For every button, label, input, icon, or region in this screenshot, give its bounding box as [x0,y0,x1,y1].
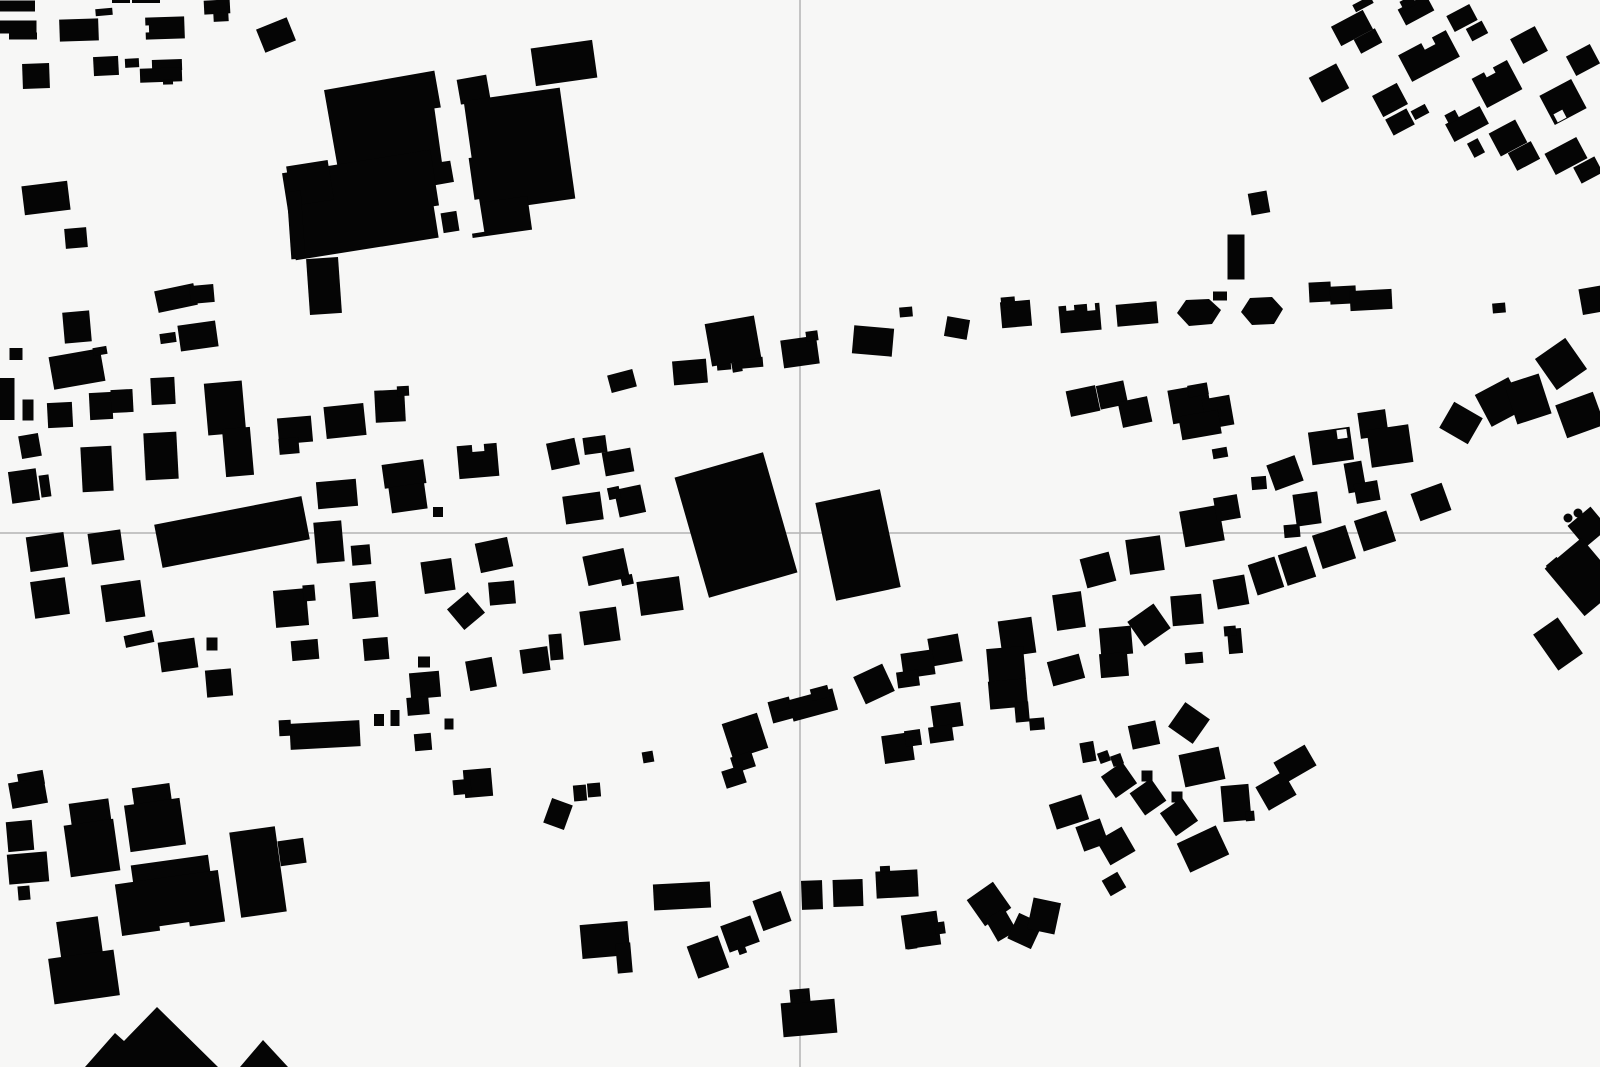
building-footprint [1125,535,1165,575]
building-footprint [899,306,913,317]
building-footprint [1213,292,1227,301]
building-footprint [562,491,604,524]
building-footprint [642,751,655,764]
building-footprint [519,646,550,674]
building-footprint [1564,514,1573,523]
buildings-top-layer [441,211,460,233]
building-footprint [140,67,182,82]
building-footprint [587,782,601,797]
building-footprint [1099,626,1133,657]
building-footprint [132,0,160,3]
building-footprint [205,668,233,697]
building-footprint [1052,591,1086,631]
building-footprint [488,580,516,605]
building-footprint [636,576,683,616]
building-footprint [1248,191,1271,216]
building-footprint [88,529,125,564]
building-footprint [573,784,587,801]
building-footprint [1014,701,1030,722]
building-footprint [204,380,246,435]
building-footprint [143,432,178,481]
building-footprint [414,733,432,751]
building-footprint [672,359,708,386]
building-footprint [852,325,894,356]
building-footprint [1292,491,1321,526]
building-footprint [374,714,384,726]
building-footprint [901,911,941,950]
building-footprint [163,79,173,84]
building-footprint [615,942,633,973]
building-footprint [277,838,306,866]
building-footprint [64,819,121,877]
building-footprint [461,88,576,213]
building-footprint [8,468,40,504]
building-footprint [278,437,299,455]
building-footprint [1029,717,1045,730]
building-footprint [409,671,441,700]
building-footprint [602,448,635,477]
map-viewport[interactable] [0,0,1600,1067]
building-footprint [1492,302,1506,313]
building-footprint [880,866,890,873]
building-footprint [607,486,621,500]
building-cutout [1066,301,1075,311]
building-footprint [1367,424,1414,467]
building-footprint [934,921,946,934]
building-footprint [1574,509,1583,518]
building-footprint [64,227,88,249]
building-cutout [143,25,149,32]
building-footprint [17,886,30,901]
building-footprint [189,284,214,304]
building-footprint [306,257,342,315]
building-cutout [1336,429,1347,439]
building-footprint [1308,281,1331,302]
building-footprint [1308,427,1354,466]
building-footprint [1251,476,1267,490]
building-footprint [47,402,73,428]
building-footprint [18,433,42,459]
building-footprint [158,638,199,673]
building-footprint [441,211,460,233]
building-footprint [1213,574,1250,609]
building-footprint [23,400,34,421]
building-footprint [1245,811,1255,822]
building-footprint [289,720,360,750]
building-footprint [653,882,711,911]
building-footprint [928,724,954,743]
building-footprint [705,315,762,366]
building-footprint [291,639,320,661]
building-footprint [222,427,254,477]
building-footprint [397,386,410,397]
building-footprint [150,377,175,405]
building-footprint [177,320,218,351]
building-footprint [323,403,366,439]
building-footprint [302,585,315,602]
building-footprint [207,638,218,651]
building-footprint [89,392,113,420]
building-footprint [896,670,920,689]
building-footprint [582,435,607,455]
building-footprint [22,63,50,89]
building-footprint [101,580,146,622]
building-footprint [1224,625,1237,636]
building-footprint [0,378,15,420]
building-footprint [0,1,35,12]
building-footprint [731,361,743,373]
building-footprint [1283,524,1300,538]
building-footprint [465,657,497,691]
building-footprint [452,779,471,796]
building-footprint [279,720,292,737]
building-footprint [833,879,864,907]
building-footprint [93,56,119,76]
building-footprint [363,637,390,661]
building-footprint [125,58,139,68]
building-cutout [1087,301,1096,311]
building-footprint [904,729,922,747]
building-footprint [59,18,99,41]
building-footprint [986,646,1026,682]
building-footprint [9,33,37,40]
building-footprint [213,12,228,22]
building-footprint [6,820,35,852]
building-footprint [805,330,818,342]
building-footprint [7,851,49,884]
building-footprint [944,316,970,340]
building-footprint [388,483,427,514]
building-footprint [145,16,185,39]
building-footprint [548,633,563,660]
building-footprint [1099,652,1129,678]
building-footprint [124,798,186,852]
building-footprint [1228,235,1245,280]
building-footprint [1350,289,1393,311]
building-footprint [62,310,92,343]
building-footprint [418,657,430,668]
map-canvas[interactable] [0,0,1600,1067]
building-footprint [110,389,133,413]
building-footprint [801,880,823,910]
building-footprint [1185,652,1204,665]
building-footprint [445,719,454,730]
building-footprint [349,581,378,619]
building-footprint [10,348,23,360]
building-footprint [1213,494,1241,522]
building-footprint [48,950,120,1005]
building-footprint [112,0,130,3]
building-footprint [391,710,400,726]
building-footprint [1116,301,1159,326]
building-footprint [1170,594,1203,627]
building-footprint [26,532,69,572]
building-footprint [313,520,344,563]
building-footprint [420,558,455,594]
building-footprint [80,446,113,493]
building-footprint [789,988,810,1004]
building-footprint [316,479,358,509]
building-footprint [1001,296,1016,307]
building-footprint [579,607,620,646]
building-footprint [30,577,70,619]
building-footprint [0,21,37,34]
building-footprint [781,999,838,1038]
building-footprint [21,181,70,215]
building-cutout [159,922,192,950]
building-footprint [351,544,372,566]
building-cutout [472,442,485,452]
building-footprint [406,696,429,716]
building-footprint [1353,480,1380,504]
building-footprint [875,869,918,898]
building-footprint [433,507,443,517]
building-footprint [95,8,113,16]
